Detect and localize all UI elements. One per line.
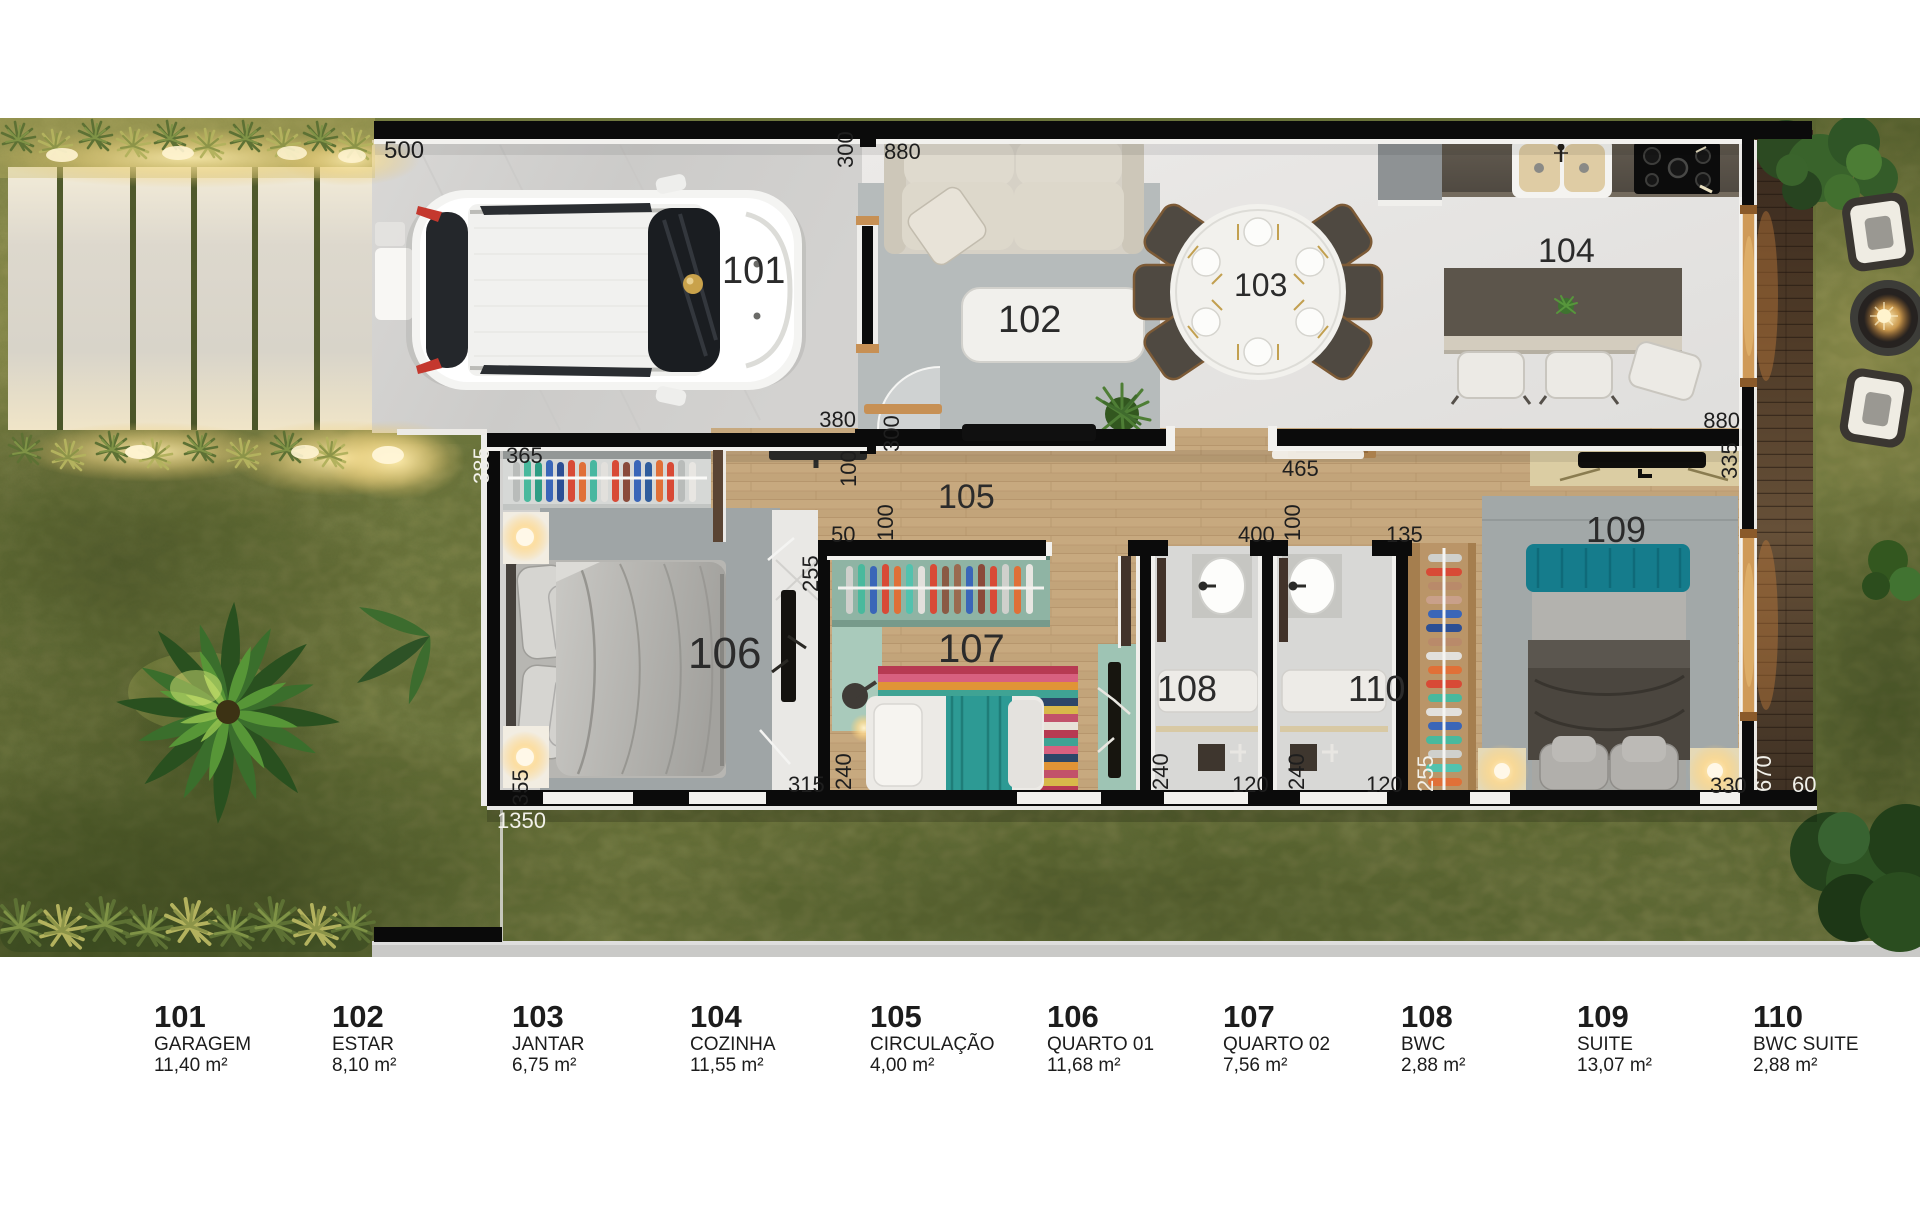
svg-text:11,68 m²: 11,68 m² <box>1047 1055 1121 1076</box>
svg-text:107: 107 <box>938 627 1005 671</box>
svg-text:SUITE: SUITE <box>1577 1034 1633 1055</box>
svg-text:QUARTO 01: QUARTO 01 <box>1047 1034 1154 1055</box>
svg-text:104: 104 <box>1538 232 1595 270</box>
svg-text:400: 400 <box>1238 522 1275 547</box>
svg-text:335: 335 <box>1717 442 1742 479</box>
svg-text:QUARTO 02: QUARTO 02 <box>1223 1034 1330 1055</box>
svg-text:106: 106 <box>688 629 761 678</box>
svg-text:1350: 1350 <box>497 808 546 833</box>
svg-text:BWC: BWC <box>1401 1034 1445 1055</box>
svg-text:100: 100 <box>836 450 861 487</box>
svg-text:100: 100 <box>873 504 898 541</box>
svg-text:COZINHA: COZINHA <box>690 1034 776 1055</box>
svg-text:465: 465 <box>1282 456 1319 481</box>
svg-text:50: 50 <box>831 522 855 547</box>
svg-text:ESTAR: ESTAR <box>332 1034 394 1055</box>
svg-text:101: 101 <box>722 250 785 292</box>
svg-text:2,88 m²: 2,88 m² <box>1753 1055 1817 1076</box>
svg-text:300: 300 <box>879 415 904 452</box>
svg-text:13,07 m²: 13,07 m² <box>1577 1055 1652 1076</box>
svg-text:102: 102 <box>998 299 1061 341</box>
svg-text:330: 330 <box>1710 773 1747 798</box>
svg-text:11,55 m²: 11,55 m² <box>690 1055 764 1076</box>
svg-text:7,56 m²: 7,56 m² <box>1223 1055 1287 1076</box>
svg-text:BWC SUITE: BWC SUITE <box>1753 1034 1859 1055</box>
svg-text:300: 300 <box>833 131 858 168</box>
svg-text:880: 880 <box>884 139 921 164</box>
svg-text:106: 106 <box>1047 999 1099 1034</box>
svg-text:6,75 m²: 6,75 m² <box>512 1055 576 1076</box>
svg-text:103: 103 <box>512 999 564 1034</box>
svg-text:2,88 m²: 2,88 m² <box>1401 1055 1465 1076</box>
svg-text:110: 110 <box>1348 668 1405 709</box>
svg-text:CIRCULAÇÃO: CIRCULAÇÃO <box>870 1033 995 1055</box>
svg-text:102: 102 <box>332 999 384 1034</box>
svg-text:255: 255 <box>798 555 823 592</box>
svg-text:100: 100 <box>1280 504 1305 541</box>
svg-text:315: 315 <box>788 772 825 797</box>
svg-text:380: 380 <box>819 407 856 432</box>
svg-text:109: 109 <box>1586 509 1646 550</box>
svg-text:120: 120 <box>1232 772 1269 797</box>
svg-text:240: 240 <box>1284 753 1309 790</box>
svg-text:4,00 m²: 4,00 m² <box>870 1055 934 1076</box>
svg-text:255: 255 <box>1413 755 1438 792</box>
svg-text:135: 135 <box>1386 522 1423 547</box>
svg-text:107: 107 <box>1223 999 1275 1034</box>
svg-text:101: 101 <box>154 999 206 1034</box>
svg-text:11,40 m²: 11,40 m² <box>154 1055 228 1076</box>
svg-text:108: 108 <box>1157 668 1217 709</box>
svg-text:365: 365 <box>506 443 543 468</box>
svg-text:108: 108 <box>1401 999 1453 1034</box>
svg-text:104: 104 <box>690 999 742 1034</box>
svg-text:109: 109 <box>1577 999 1629 1034</box>
svg-text:103: 103 <box>1234 267 1287 303</box>
svg-text:880: 880 <box>1703 408 1740 433</box>
svg-text:500: 500 <box>384 137 424 164</box>
svg-text:670: 670 <box>1751 755 1776 792</box>
svg-text:JANTAR: JANTAR <box>512 1034 584 1055</box>
svg-text:GARAGEM: GARAGEM <box>154 1034 251 1055</box>
svg-text:240: 240 <box>831 753 856 790</box>
svg-text:60: 60 <box>1792 772 1816 797</box>
svg-text:355: 355 <box>508 769 533 806</box>
svg-text:110: 110 <box>1753 999 1803 1034</box>
svg-text:105: 105 <box>870 999 922 1034</box>
svg-text:120: 120 <box>1366 772 1403 797</box>
svg-text:385: 385 <box>469 447 494 484</box>
svg-text:105: 105 <box>938 478 995 516</box>
svg-text:240: 240 <box>1148 753 1173 790</box>
svg-text:8,10 m²: 8,10 m² <box>332 1055 396 1076</box>
